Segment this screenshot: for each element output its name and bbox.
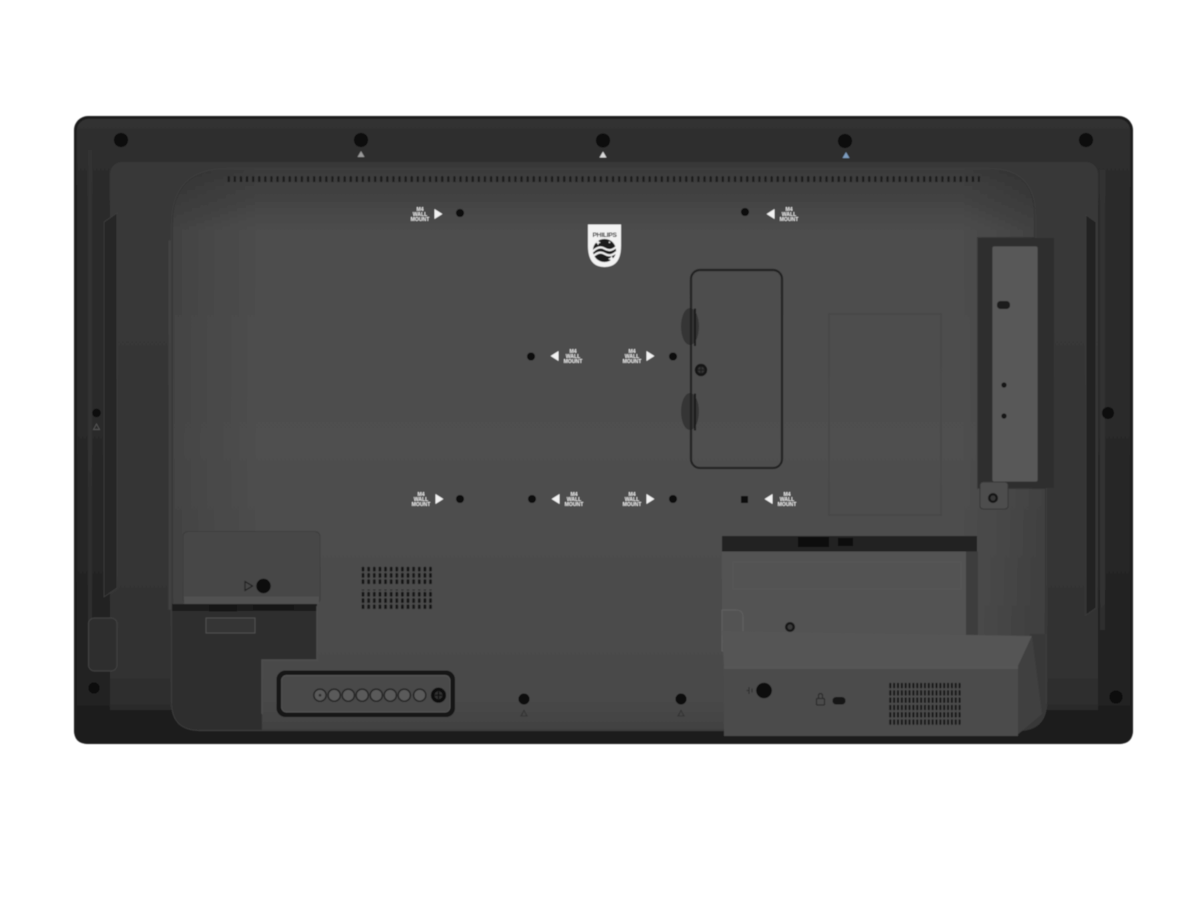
svg-text:PHILIPS: PHILIPS xyxy=(592,232,617,239)
